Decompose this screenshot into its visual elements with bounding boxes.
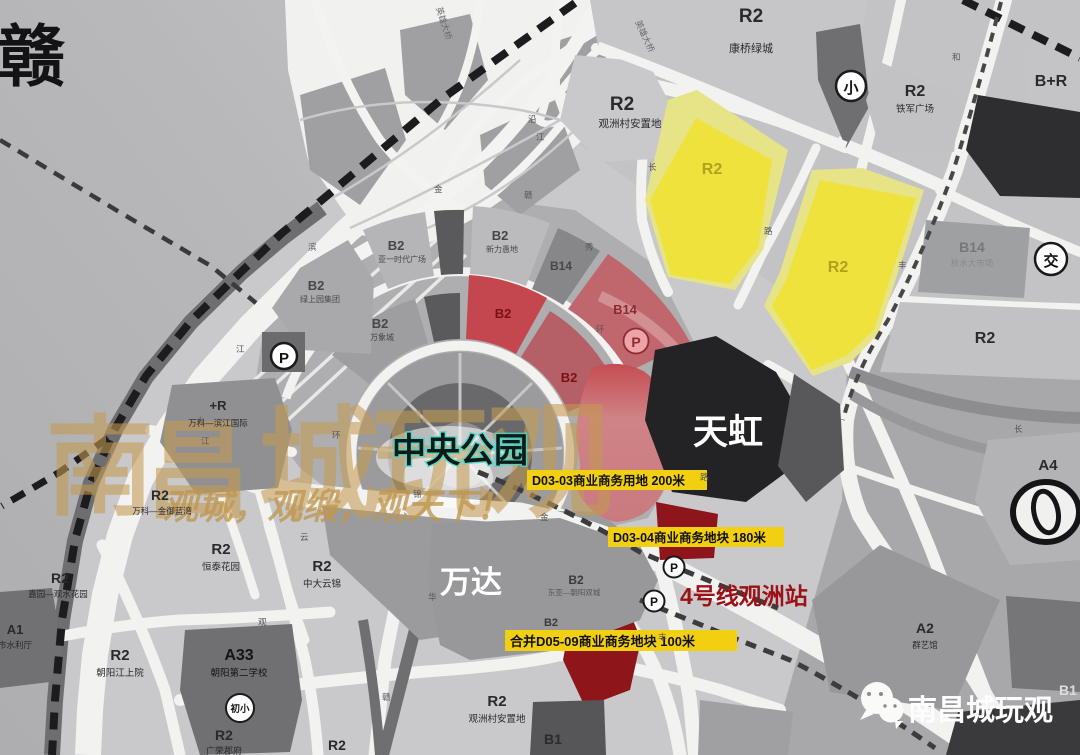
svg-text:朝阳第二学校: 朝阳第二学校 xyxy=(210,667,268,679)
svg-text:丰: 丰 xyxy=(658,632,667,642)
svg-text:R2: R2 xyxy=(905,83,926,100)
svg-text:路: 路 xyxy=(764,226,773,236)
svg-text:B2: B2 xyxy=(388,238,405,253)
svg-text:R2: R2 xyxy=(702,161,723,178)
svg-text:P: P xyxy=(670,561,678,575)
svg-text:嘉园—观水花园: 嘉园—观水花园 xyxy=(28,589,88,599)
svg-text:万象城: 万象城 xyxy=(370,332,394,342)
svg-text:R2: R2 xyxy=(328,737,346,753)
svg-text:沿: 沿 xyxy=(528,114,537,124)
svg-text:交: 交 xyxy=(1043,252,1058,270)
svg-text:金: 金 xyxy=(434,184,443,194)
svg-text:路: 路 xyxy=(700,472,709,482)
svg-text:康桥绿城: 康桥绿城 xyxy=(729,41,773,55)
svg-text:亚一时代广场: 亚一时代广场 xyxy=(378,254,426,264)
svg-text:R2: R2 xyxy=(51,570,69,586)
svg-text:D03-03商业商务用地 200米: D03-03商业商务用地 200米 xyxy=(532,473,685,488)
svg-text:市水利厅: 市水利厅 xyxy=(0,640,32,650)
svg-text:滨: 滨 xyxy=(308,242,317,252)
svg-text:长: 长 xyxy=(1014,424,1023,434)
svg-text:B+R: B+R xyxy=(1035,73,1068,90)
svg-text:P: P xyxy=(650,595,658,609)
svg-text:B2: B2 xyxy=(495,306,512,321)
svg-text:观洲村安置地: 观洲村安置地 xyxy=(468,713,526,725)
svg-text:B14: B14 xyxy=(550,259,572,273)
svg-text:赣: 赣 xyxy=(524,190,533,200)
svg-text:A33: A33 xyxy=(224,647,253,664)
svg-text:B2: B2 xyxy=(492,228,509,243)
svg-text:赣: 赣 xyxy=(0,20,66,95)
svg-text:B2: B2 xyxy=(561,370,578,385)
svg-text:云: 云 xyxy=(300,532,309,542)
svg-text:R2: R2 xyxy=(211,541,230,558)
svg-text:4号线观洲站: 4号线观洲站 xyxy=(680,583,808,609)
svg-text:恒泰花园: 恒泰花园 xyxy=(202,561,240,573)
svg-text:华: 华 xyxy=(428,592,437,602)
svg-text:江: 江 xyxy=(536,132,545,142)
svg-text:R2: R2 xyxy=(487,693,506,710)
svg-text:小: 小 xyxy=(843,80,858,97)
svg-text:B2: B2 xyxy=(568,573,584,587)
svg-text:铁军广场: 铁军广场 xyxy=(896,103,934,115)
svg-text:P: P xyxy=(279,350,289,367)
svg-text:大: 大 xyxy=(196,416,205,426)
svg-text:朝阳江上院: 朝阳江上院 xyxy=(96,667,144,679)
svg-text:观城，观缎，观天下！: 观城，观缎，观天下！ xyxy=(163,486,511,527)
svg-text:新力愚地: 新力愚地 xyxy=(486,244,518,254)
svg-text:R2: R2 xyxy=(151,487,169,503)
svg-text:R2: R2 xyxy=(312,558,331,575)
svg-text:赣: 赣 xyxy=(382,692,391,702)
svg-text:长: 长 xyxy=(648,162,657,172)
svg-text:环: 环 xyxy=(596,324,605,334)
svg-text:B1: B1 xyxy=(1059,682,1077,698)
svg-text:A4: A4 xyxy=(1038,457,1058,474)
svg-text:R2: R2 xyxy=(610,94,634,115)
svg-text:+R: +R xyxy=(210,398,228,413)
svg-text:金: 金 xyxy=(540,512,549,522)
svg-text:中央公园: 中央公园 xyxy=(392,432,528,470)
svg-text:R2: R2 xyxy=(739,6,763,27)
svg-text:A2: A2 xyxy=(916,620,934,636)
svg-text:R2: R2 xyxy=(828,259,849,276)
svg-text:B14: B14 xyxy=(613,302,638,317)
svg-text:秀: 秀 xyxy=(585,242,594,252)
svg-text:B2: B2 xyxy=(308,278,325,293)
svg-text:合并D05-09商业商务地块 100米: 合并D05-09商业商务地块 100米 xyxy=(510,634,696,649)
svg-text:A1: A1 xyxy=(7,622,24,637)
svg-text:R2: R2 xyxy=(975,330,996,347)
svg-text:观洲村安置地: 观洲村安置地 xyxy=(599,117,662,130)
svg-text:B14: B14 xyxy=(959,239,985,255)
svg-text:江: 江 xyxy=(201,436,210,446)
svg-text:南昌城玩观: 南昌城玩观 xyxy=(908,694,1053,727)
svg-text:群艺馆: 群艺馆 xyxy=(912,640,938,650)
svg-text:丰: 丰 xyxy=(898,260,907,270)
svg-text:江: 江 xyxy=(236,344,245,354)
svg-text:中大云锦: 中大云锦 xyxy=(303,578,341,590)
svg-text:初小: 初小 xyxy=(230,703,250,715)
svg-text:万达: 万达 xyxy=(440,565,502,600)
svg-text:P: P xyxy=(631,334,640,350)
svg-text:天虹: 天虹 xyxy=(693,413,763,452)
svg-text:D03-04商业商务地块 180米: D03-04商业商务地块 180米 xyxy=(613,530,766,545)
svg-text:东亚—朝阳双城: 东亚—朝阳双城 xyxy=(548,587,601,597)
svg-text:锦: 锦 xyxy=(413,489,422,499)
svg-text:广荣郡府: 广荣郡府 xyxy=(206,745,242,755)
svg-text:环: 环 xyxy=(332,430,341,440)
svg-text:绿上园集团: 绿上园集团 xyxy=(300,294,340,304)
svg-text:B2: B2 xyxy=(544,617,558,629)
svg-text:R2: R2 xyxy=(110,647,129,664)
svg-text:R2: R2 xyxy=(215,727,233,743)
svg-text:秋水大市场: 秋水大市场 xyxy=(951,258,994,268)
svg-text:和: 和 xyxy=(952,52,961,62)
svg-text:万科—金御蓝湾: 万科—金御蓝湾 xyxy=(132,506,192,516)
svg-text:B2: B2 xyxy=(372,316,389,331)
svg-text:观: 观 xyxy=(258,617,267,627)
svg-text:B1: B1 xyxy=(544,731,562,747)
